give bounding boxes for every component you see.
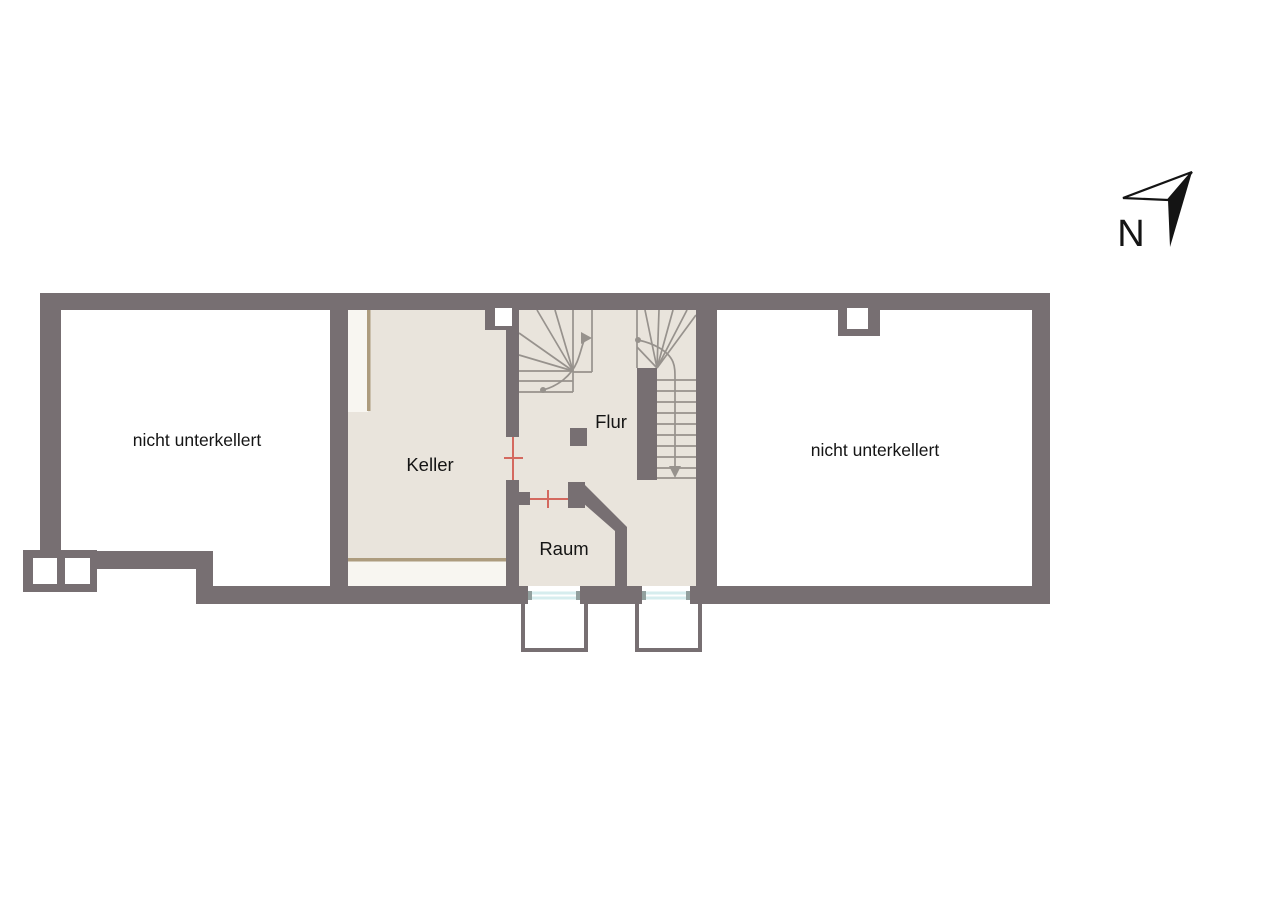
wall-raum-corner [568, 482, 585, 508]
pier-block [23, 550, 97, 592]
room-label-right-area: nicht unterkellert [811, 440, 940, 460]
light-wells [523, 604, 700, 650]
basement-window-1 [528, 586, 580, 604]
chimney-keller [485, 308, 519, 330]
floor-plan-canvas: nicht unterkellert Keller Flur Raum nich… [0, 0, 1280, 905]
room-label-keller: Keller [406, 454, 453, 475]
light-well-2 [637, 604, 700, 650]
basement-window-2 [642, 586, 690, 604]
wall-bottom [196, 586, 1050, 604]
room-label-flur: Flur [595, 411, 627, 432]
wall-right [1032, 293, 1050, 604]
north-label: N [1117, 213, 1144, 255]
wall-flur-east [696, 310, 717, 586]
north-compass: N [1117, 172, 1192, 255]
wall-keller-raum [506, 480, 519, 586]
light-well-1 [523, 604, 586, 650]
wall-left [40, 293, 61, 552]
pier-opening-1 [33, 558, 57, 584]
floor-plan-page: nicht unterkellert Keller Flur Raum nich… [0, 0, 1280, 905]
flur-pillar [570, 428, 587, 446]
pier-opening-2 [65, 558, 90, 584]
stair-stringer-wall [637, 368, 657, 480]
wall-top [40, 293, 1050, 310]
room-label-raum: Raum [539, 538, 588, 559]
room-label-left-area: nicht unterkellert [133, 430, 262, 450]
wall-keller-west [330, 310, 348, 586]
wall-bottom-left-upper [95, 551, 213, 569]
chimney-right-room [838, 308, 880, 336]
